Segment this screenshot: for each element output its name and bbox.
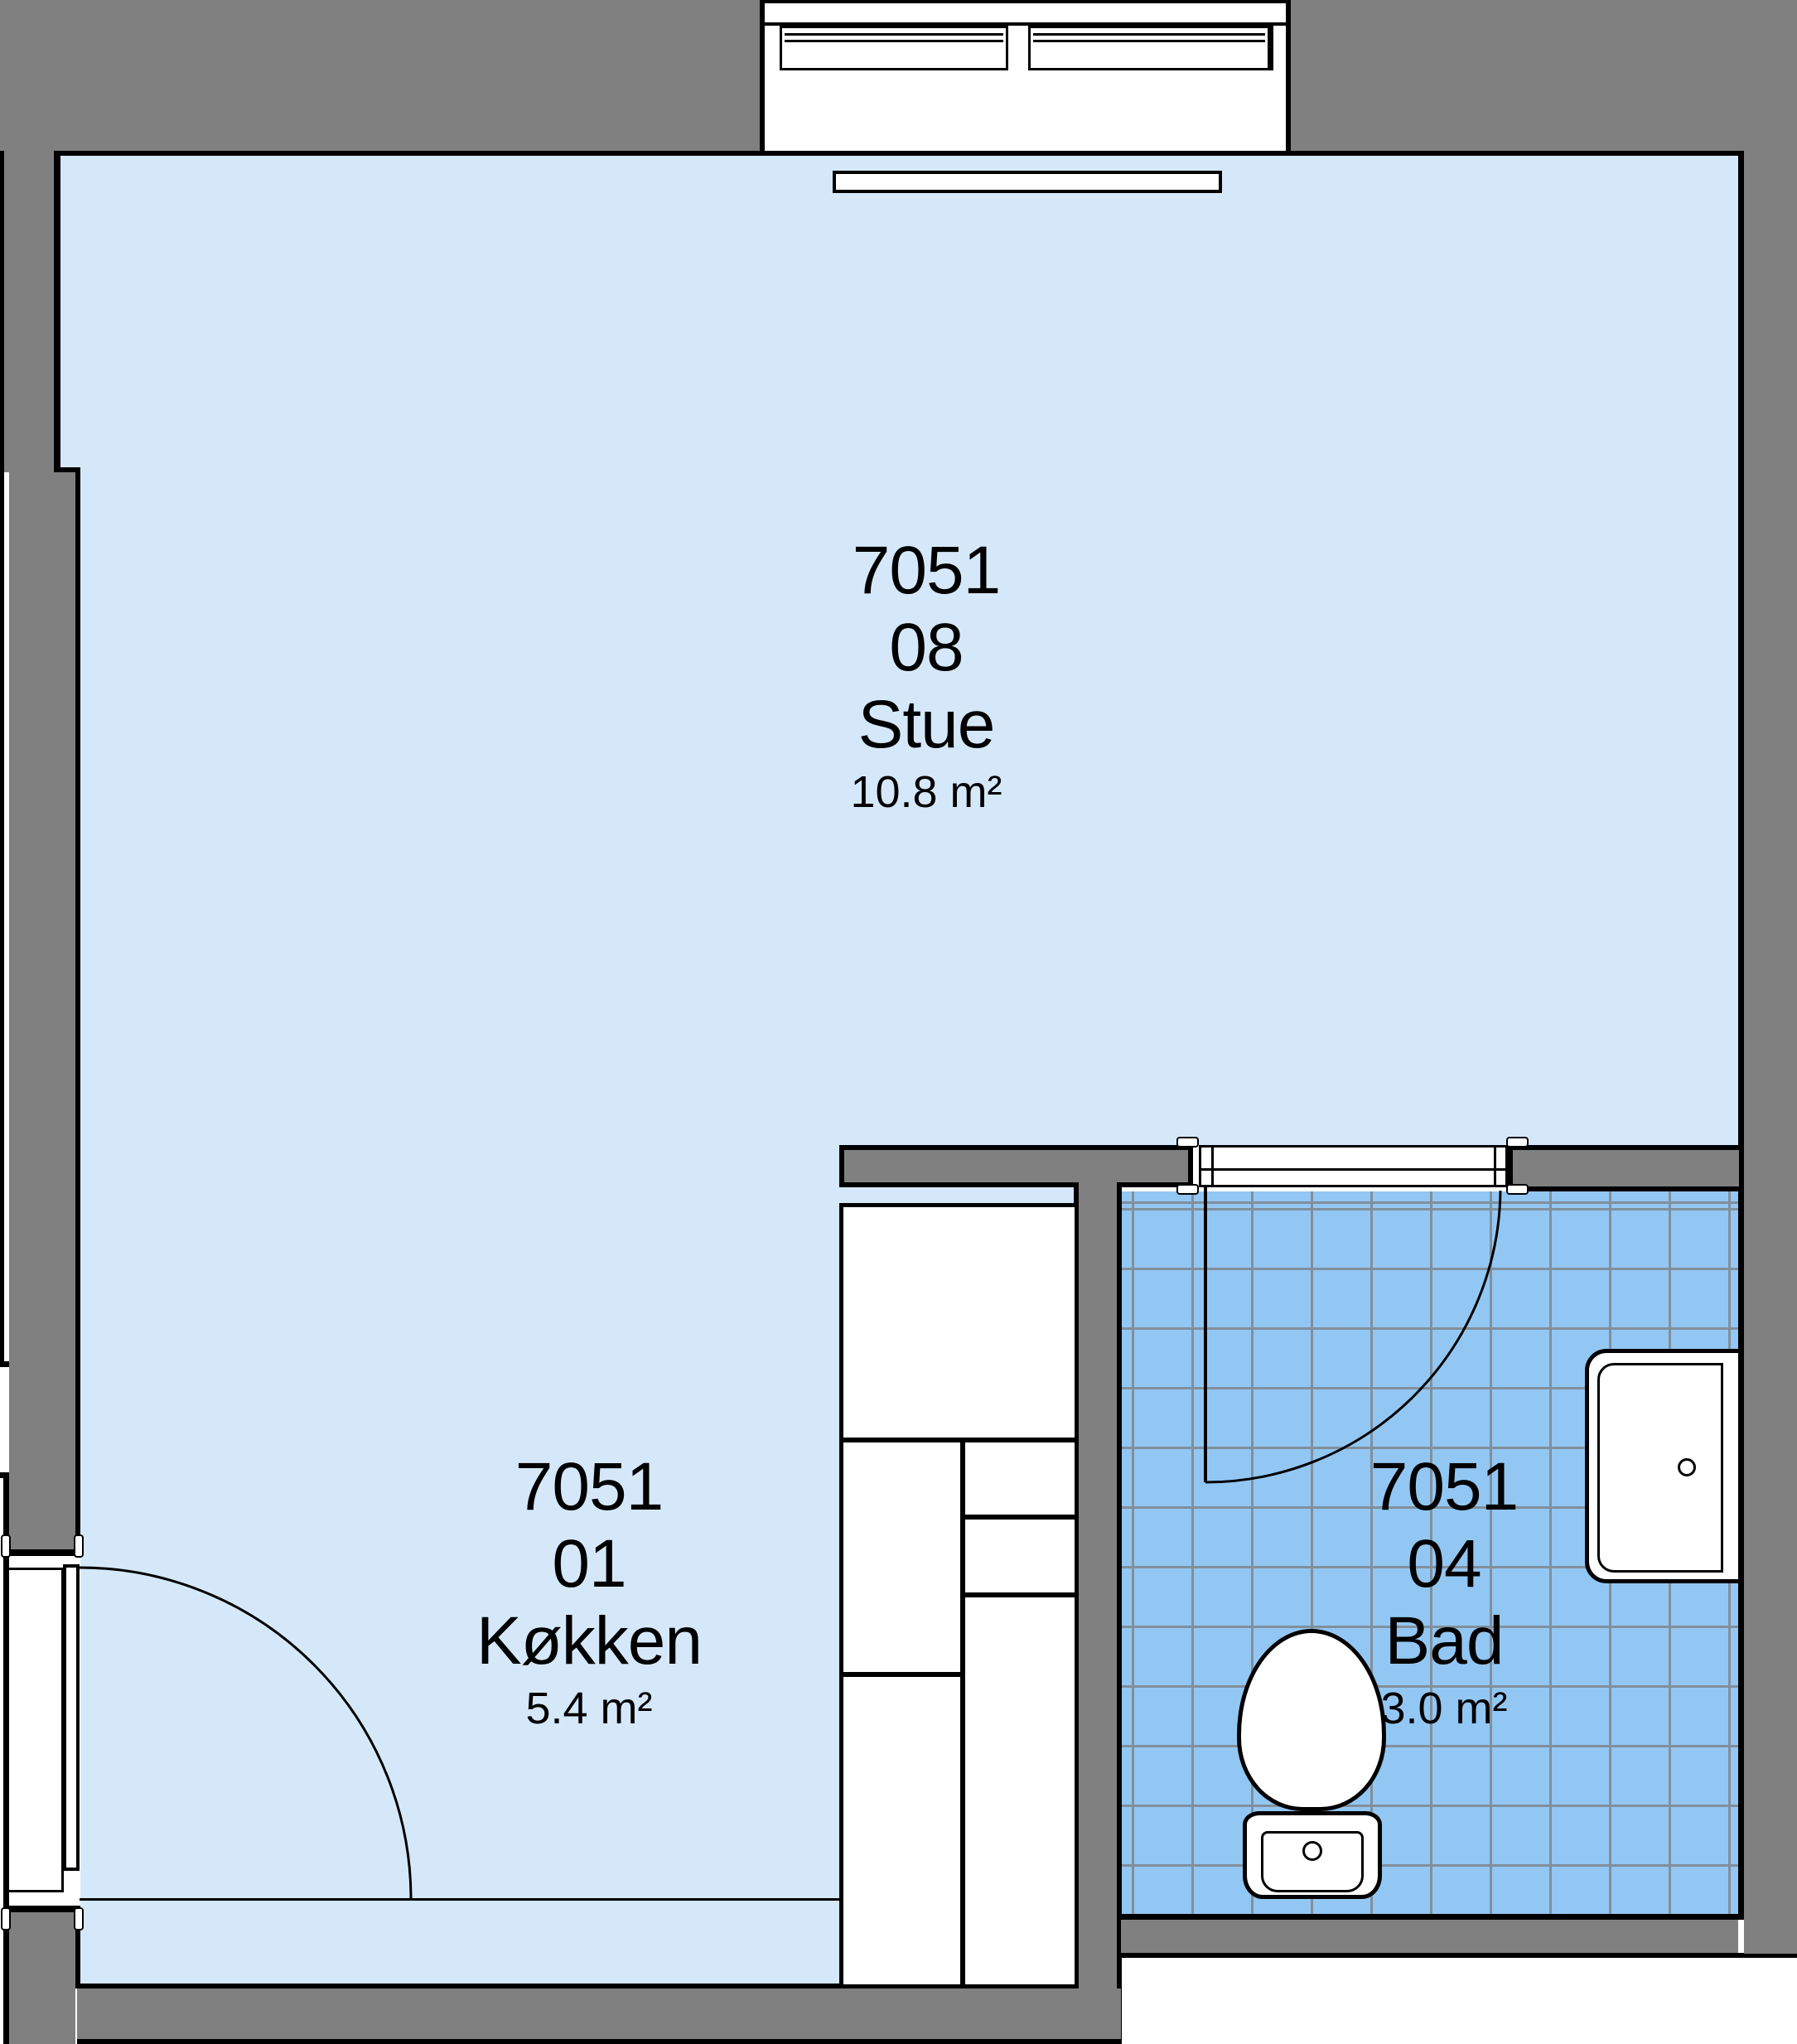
sill-line [1201,1168,1505,1171]
room-code: 7051 [719,532,1133,609]
entrance-door-leaf [63,1564,80,1871]
wall-border [77,2039,1121,2044]
wall-partition-leg [1079,1182,1117,2039]
window-glass-line [1033,40,1265,42]
wall-border [3,1477,9,2044]
wall-left-below-door [9,1912,75,2044]
door-jamb-tab [1176,1184,1199,1195]
door-jamb-tab [74,1534,84,1558]
window-glass-line [785,33,1003,36]
kitchen-cabinets [839,1203,1079,1988]
window-glass-line [785,40,1003,42]
wall-border [75,472,80,1556]
door-jamb-tab [1176,1137,1199,1148]
room-label-bad: 7051 04 Bad 3.0 m² [1237,1448,1651,1734]
wall-top-left [0,0,760,151]
room-area: 3.0 m² [1237,1683,1651,1734]
wall-border [1121,1953,1797,1958]
room-area: 10.8 m² [719,766,1133,818]
wall-bathroom-top-right [1513,1150,1739,1186]
cabinet-divider [960,1592,1075,1597]
door-frame-line [8,1568,64,1570]
door-frame-line [8,1890,64,1892]
wall-left-lower [9,472,75,1549]
door-jamb-tab [1506,1137,1529,1148]
room-code: 7051 [382,1448,796,1525]
window-mullion [1270,26,1273,70]
sill-line [1494,1148,1496,1185]
cabinet-divider [843,1672,960,1677]
room-label-kokken: 7051 01 Køkken 5.4 m² [382,1448,796,1734]
wall-border [1738,156,1744,1920]
bathroom-door-sill [1199,1145,1508,1187]
room-area: 5.4 m² [382,1683,796,1734]
room-unit: 01 [382,1525,796,1602]
entrance-threshold-line [80,1898,839,1901]
ceiling-light [833,171,1222,193]
room-label-stue: 7051 08 Stue 10.8 m² [719,532,1133,818]
door-jamb-tab [1506,1184,1529,1195]
wall-right [1744,4,1797,1954]
wall-border [54,156,60,472]
wall-top-right [1291,0,1797,151]
room-name: Stue [719,686,1133,763]
sill-line [1211,1148,1214,1185]
wall-bottom-bathroom [1121,1920,1738,1953]
sink-faucet-hole [1678,1458,1696,1476]
toilet-flush-button [1302,1841,1322,1861]
floor-plan: 7051 08 Stue 10.8 m² 7051 01 Køkken 5.4 … [0,0,1797,2044]
bathroom-door-leaf [1204,1187,1207,1482]
cabinet-divider [960,1438,965,1984]
wall-left-upper [4,0,54,472]
wall-bottom-left [77,1988,1121,2039]
cabinet-divider [960,1515,1075,1520]
wall-border [54,151,1744,156]
window-glass-line [1033,33,1265,36]
room-name: Bad [1237,1602,1651,1679]
wall-partition-stub [844,1150,1188,1182]
wall-border [9,1906,80,1912]
cabinet-divider [843,1438,1075,1442]
room-name: Køkken [382,1602,796,1679]
room-unit: 08 [719,609,1133,686]
wall-border [1121,1914,1738,1920]
door-jamb-tab [1,1534,11,1558]
room-unit: 04 [1237,1525,1651,1602]
door-jamb-tab [74,1907,84,1930]
room-code: 7051 [1237,1448,1651,1525]
door-jamb-tab [1,1907,11,1930]
window-side-frame [1286,0,1291,156]
wall-border [9,1549,80,1556]
